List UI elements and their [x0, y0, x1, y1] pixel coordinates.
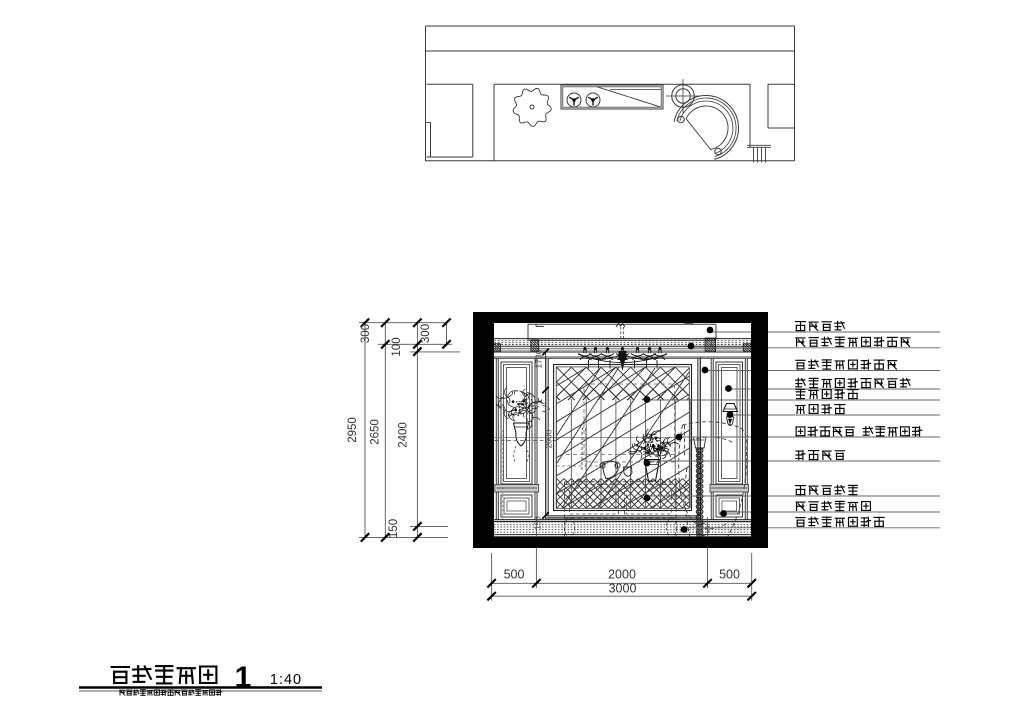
- svg-text:150: 150: [388, 519, 400, 538]
- svg-text:1730: 1730: [534, 349, 544, 368]
- svg-text:300: 300: [360, 324, 372, 343]
- svg-text:2000: 2000: [608, 568, 636, 582]
- svg-text:1:40: 1:40: [270, 672, 302, 688]
- svg-text:100: 100: [391, 337, 403, 356]
- svg-text:2000: 2000: [544, 429, 554, 448]
- svg-text:150: 150: [534, 516, 543, 530]
- svg-text:500: 500: [719, 568, 740, 582]
- svg-text:2400: 2400: [398, 422, 410, 448]
- svg-text:500: 500: [504, 568, 525, 582]
- svg-text:2650: 2650: [370, 419, 382, 445]
- svg-text:1: 1: [235, 661, 252, 694]
- svg-text:300: 300: [420, 324, 432, 343]
- svg-text:2950: 2950: [347, 417, 359, 443]
- svg-text:3000: 3000: [609, 582, 637, 596]
